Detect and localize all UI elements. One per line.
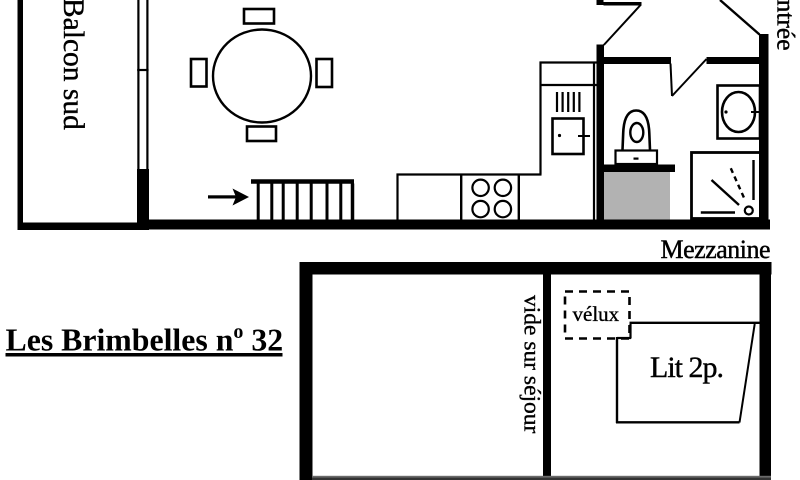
svg-text:Lit 2p.: Lit 2p. — [650, 351, 723, 384]
svg-text:Balcon sud: Balcon sud — [57, 0, 89, 130]
svg-text:vélux: vélux — [573, 302, 620, 326]
svg-text:Entrée: Entrée — [772, 0, 800, 51]
svg-text:vide sur séjour: vide sur séjour — [519, 295, 545, 434]
svg-text:Mezzanine: Mezzanine — [661, 235, 771, 264]
